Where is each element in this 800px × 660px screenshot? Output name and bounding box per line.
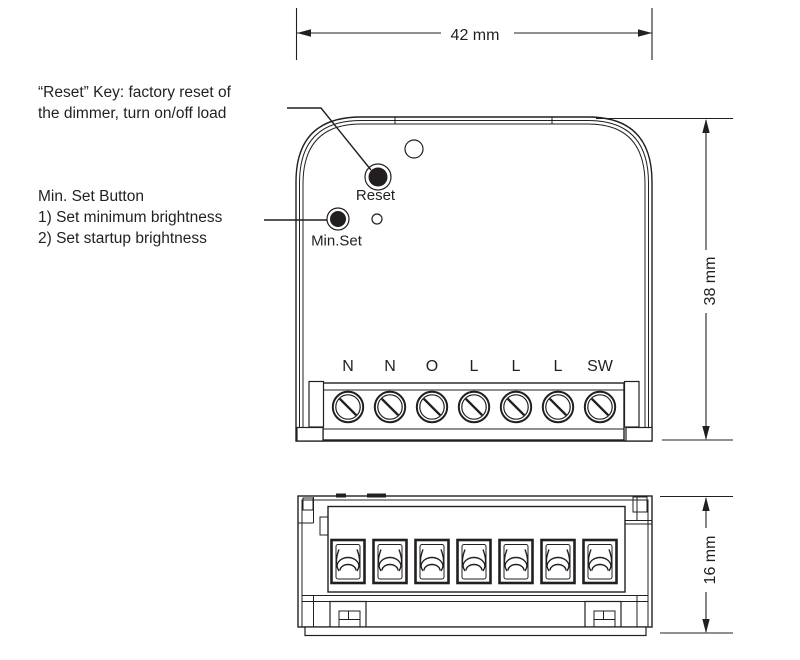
reset-button-label: Reset — [356, 187, 396, 204]
minset-annotation: Min. Set Button 1) Set minimum brightnes… — [38, 188, 327, 247]
minset-note-line1: Min. Set Button — [38, 188, 144, 205]
dim-height-label: 38 mm — [702, 257, 719, 306]
terminal-label: L — [512, 358, 521, 375]
terminal-label: N — [342, 358, 354, 375]
bottom-corner-step — [626, 428, 652, 442]
mold-mark — [336, 494, 346, 498]
minset-button-label: Min.Set — [311, 233, 363, 250]
dim-depth-label: 16 mm — [702, 536, 719, 585]
side-view — [298, 494, 652, 636]
dim-width-label: 42 mm — [451, 27, 500, 44]
dimmer-dimension-diagram: 42 mm N N O L — [0, 0, 800, 660]
terminal-block-tab — [625, 382, 640, 428]
dimension-width-42mm: 42 mm — [297, 8, 653, 60]
bottom-plate — [305, 627, 646, 636]
arrow-up-icon — [702, 497, 709, 511]
arrow-down-icon — [702, 426, 709, 440]
reset-note-line1: “Reset” Key: factory reset of — [38, 84, 232, 101]
terminal-label: L — [554, 358, 563, 375]
arrow-left-icon — [297, 29, 311, 36]
terminal-label: O — [426, 358, 438, 375]
minset-note-line3: 2) Set startup brightness — [38, 230, 207, 247]
bottom-corner-step — [297, 428, 323, 442]
terminal-block-tab — [309, 382, 324, 428]
arrow-right-icon — [638, 29, 652, 36]
side-outline — [298, 496, 652, 627]
mold-mark — [367, 494, 386, 498]
diagram-canvas: 42 mm N N O L — [0, 0, 800, 660]
front-view: N N O L L L SW Reset Min.Set — [296, 117, 652, 441]
terminal-label: L — [470, 358, 479, 375]
reset-note-line2: the dimmer, turn on/off load — [38, 105, 226, 122]
arrow-down-icon — [702, 619, 709, 633]
terminal-label: SW — [587, 358, 614, 375]
terminal-label: N — [384, 358, 396, 375]
minset-button — [327, 208, 349, 230]
minset-note-line2: 1) Set minimum brightness — [38, 209, 223, 226]
dimension-depth-16mm: 16 mm — [660, 497, 733, 634]
arrow-up-icon — [702, 119, 709, 133]
